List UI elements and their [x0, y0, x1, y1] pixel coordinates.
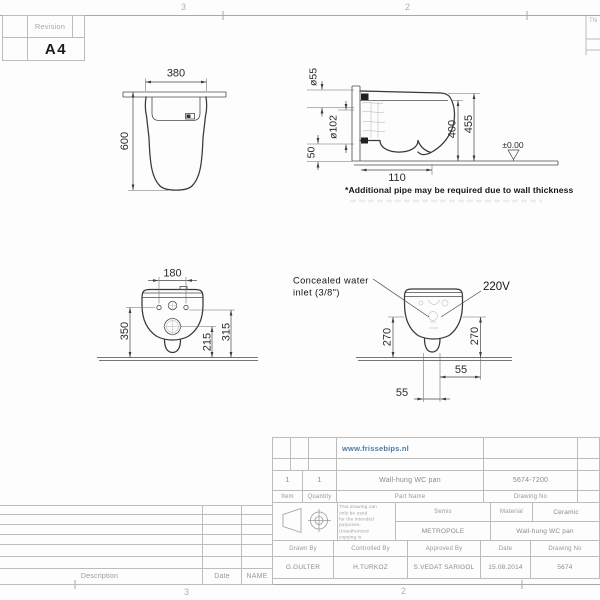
inlet-label-line2: inlet (3/8"): [293, 288, 340, 298]
revision-label: Revision: [27, 15, 73, 38]
rear-w55-bottom-dim: 55: [396, 387, 408, 399]
revision-box-cut-cell: [2, 15, 28, 38]
floor-level-label: ±0.00: [502, 140, 523, 150]
side-w110-dim: 110: [388, 172, 406, 184]
corner-text-fragment: Thi: [589, 18, 597, 24]
rear-view: Concealed water inlet (3/8") 220V 270 27…: [293, 276, 512, 403]
front-h315-dim: 315: [220, 323, 232, 341]
drawing-no-value: 5674-7200: [483, 470, 578, 491]
wall-thickness-note: *Additional pipe may be required due to …: [345, 185, 574, 195]
revision-small-cell: [72, 15, 85, 38]
side-h50-dim: 50: [306, 147, 318, 159]
part-name-value: Wall-hung WC pan: [336, 470, 484, 491]
tb-cell: [577, 437, 600, 459]
side-dia-large-dim: ø102: [328, 115, 340, 139]
drawn-by-label: Drawn By: [272, 540, 334, 557]
front-h215-dim: 215: [201, 333, 213, 351]
rear-h270-left-dim: 270: [381, 328, 393, 346]
front-w180-dim: 180: [163, 268, 181, 280]
date-value: 15.08.2014: [480, 556, 531, 579]
approved-by-value: S.VEDAT SARIGOL: [407, 556, 481, 579]
description-header: Description: [0, 568, 203, 585]
grid-label-top-2: 2: [405, 2, 410, 12]
tb-cell: [308, 437, 337, 459]
name-header: NAME: [241, 568, 273, 585]
disclaimer-text: This drawing can only be used for the in…: [339, 505, 382, 541]
spout: [425, 339, 441, 352]
material-label: Material: [490, 502, 533, 522]
side-h455-dim: 455: [463, 115, 475, 133]
tb-cell: [272, 437, 291, 459]
concealed-pipe-detail: [362, 100, 385, 138]
tb-cell: [577, 470, 600, 491]
controlled-by-value: H.TURKOZ: [333, 556, 408, 579]
rear-h270-right-dim: 270: [469, 327, 481, 345]
tb-cell: [483, 437, 578, 459]
inlet-valve-detail: [428, 300, 440, 328]
date-label: Date: [480, 540, 531, 557]
mount-hole-right: [184, 305, 188, 309]
tb-cell: [290, 437, 309, 459]
drawing-no2-value: 5674: [530, 556, 600, 579]
inlet-label-line1: Concealed water: [293, 276, 369, 286]
plan-view: 380 600: [119, 68, 226, 191]
front-h350-dim: 350: [119, 322, 131, 340]
disclaimer-cell: This drawing can only be used for the in…: [337, 502, 396, 541]
side-view: ø55 ø102 50 110 400 455 ±0.00 *Additiona…: [306, 68, 574, 201]
quantity-value: 1: [302, 470, 337, 491]
revision-box-cut-cell2: [2, 37, 28, 61]
drawing-no2-label: Drawing No: [530, 540, 600, 557]
controlled-by-label: Controlled By: [333, 540, 408, 557]
product-value: Wall-hung WC pan: [490, 521, 600, 541]
series-value: METROPOLE: [395, 521, 491, 541]
mount-hole-left: [157, 305, 161, 309]
inlet-leader-line: [373, 279, 429, 317]
grid-label-bottom-2: 2: [401, 586, 406, 596]
website-link[interactable]: www.frissebips.nl: [336, 437, 484, 459]
power-label: 220V: [483, 281, 510, 293]
fixing-bracket-top: [361, 94, 369, 101]
grid-label-top-3: 3: [181, 2, 186, 12]
drawing-sheet: { "frame": { "grid_top_left": "3", "grid…: [0, 0, 600, 600]
rear-w55-right-dim: 55: [455, 364, 467, 376]
material-value: Ceramic: [532, 502, 600, 522]
power-leader-line: [441, 291, 481, 317]
semis-label: Semis: [395, 502, 491, 522]
fixing-bracket-bottom: [361, 138, 368, 144]
projection-symbol-cell: [272, 502, 338, 541]
plan-depth-dim: 600: [119, 132, 131, 150]
grid-label-bottom-3: 3: [184, 587, 189, 597]
datum-symbol: [508, 150, 519, 161]
approved-by-label: Approved By: [407, 540, 481, 557]
sheet-size-label: A4: [27, 37, 85, 61]
date-header: Date: [202, 568, 242, 585]
item-value: 1: [272, 470, 303, 491]
spout: [165, 340, 181, 353]
plan-width-dim: 380: [167, 68, 185, 80]
drawn-by-value: G.GULTER: [272, 556, 334, 579]
side-h400-dim: 400: [446, 120, 458, 138]
front-view: 180 350 215 315: [97, 268, 258, 361]
side-dia-small-dim: ø55: [308, 68, 320, 86]
